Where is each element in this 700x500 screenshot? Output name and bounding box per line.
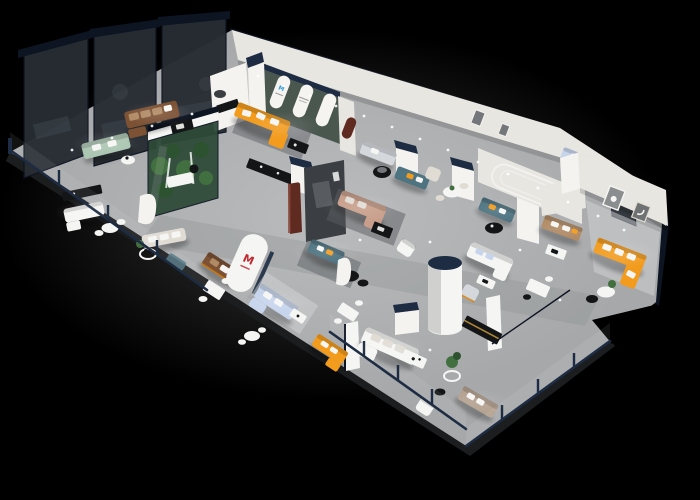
chair	[222, 278, 231, 284]
foliage	[166, 144, 180, 158]
decor	[491, 225, 494, 228]
maroon-panel-edge	[288, 184, 291, 233]
chair-cushion	[377, 167, 387, 173]
glow	[72, 131, 140, 157]
glow	[290, 239, 362, 265]
kettle-decor	[125, 156, 128, 159]
glow	[244, 112, 320, 140]
chair	[436, 195, 445, 201]
mullion	[573, 353, 575, 368]
dark-armchair	[214, 90, 226, 98]
floorplan-render: M	[0, 0, 700, 500]
cylinder-shade	[428, 263, 441, 334]
chair	[199, 296, 208, 302]
chair	[523, 294, 531, 300]
mullion	[156, 240, 158, 255]
table-top	[244, 331, 260, 341]
mullion	[537, 379, 539, 394]
black-chair	[586, 295, 598, 303]
chair	[258, 327, 266, 333]
plant	[608, 280, 616, 288]
chair	[238, 339, 246, 345]
black-round-table	[485, 223, 503, 234]
table-top	[597, 287, 615, 298]
mullion	[431, 389, 433, 404]
glow	[530, 216, 594, 240]
glow	[54, 201, 114, 223]
foliage	[199, 171, 213, 185]
glow	[465, 198, 529, 222]
glow	[444, 389, 512, 415]
cylinder-rotunda	[428, 256, 462, 335]
swan-decor	[144, 249, 148, 253]
glow	[352, 334, 428, 362]
glow	[122, 101, 194, 127]
chair	[460, 183, 469, 189]
plant	[453, 352, 461, 360]
showroom-scene: M	[0, 0, 700, 500]
corner-post	[8, 138, 12, 154]
mullion	[397, 365, 399, 380]
foliage	[193, 142, 209, 158]
navy-cap-wall-front	[393, 302, 419, 335]
glow	[322, 193, 402, 223]
mullion	[58, 170, 60, 185]
chair	[95, 230, 104, 236]
side-table-sage	[121, 156, 135, 165]
glow	[580, 239, 660, 269]
wall-body	[395, 310, 419, 335]
dim-interior-plant	[112, 84, 128, 100]
glow	[240, 289, 312, 315]
centerpiece-plant	[450, 186, 455, 191]
chair	[355, 300, 363, 306]
black-round-table-2	[358, 280, 369, 287]
cylinder-top	[428, 256, 462, 270]
chair	[545, 276, 553, 282]
